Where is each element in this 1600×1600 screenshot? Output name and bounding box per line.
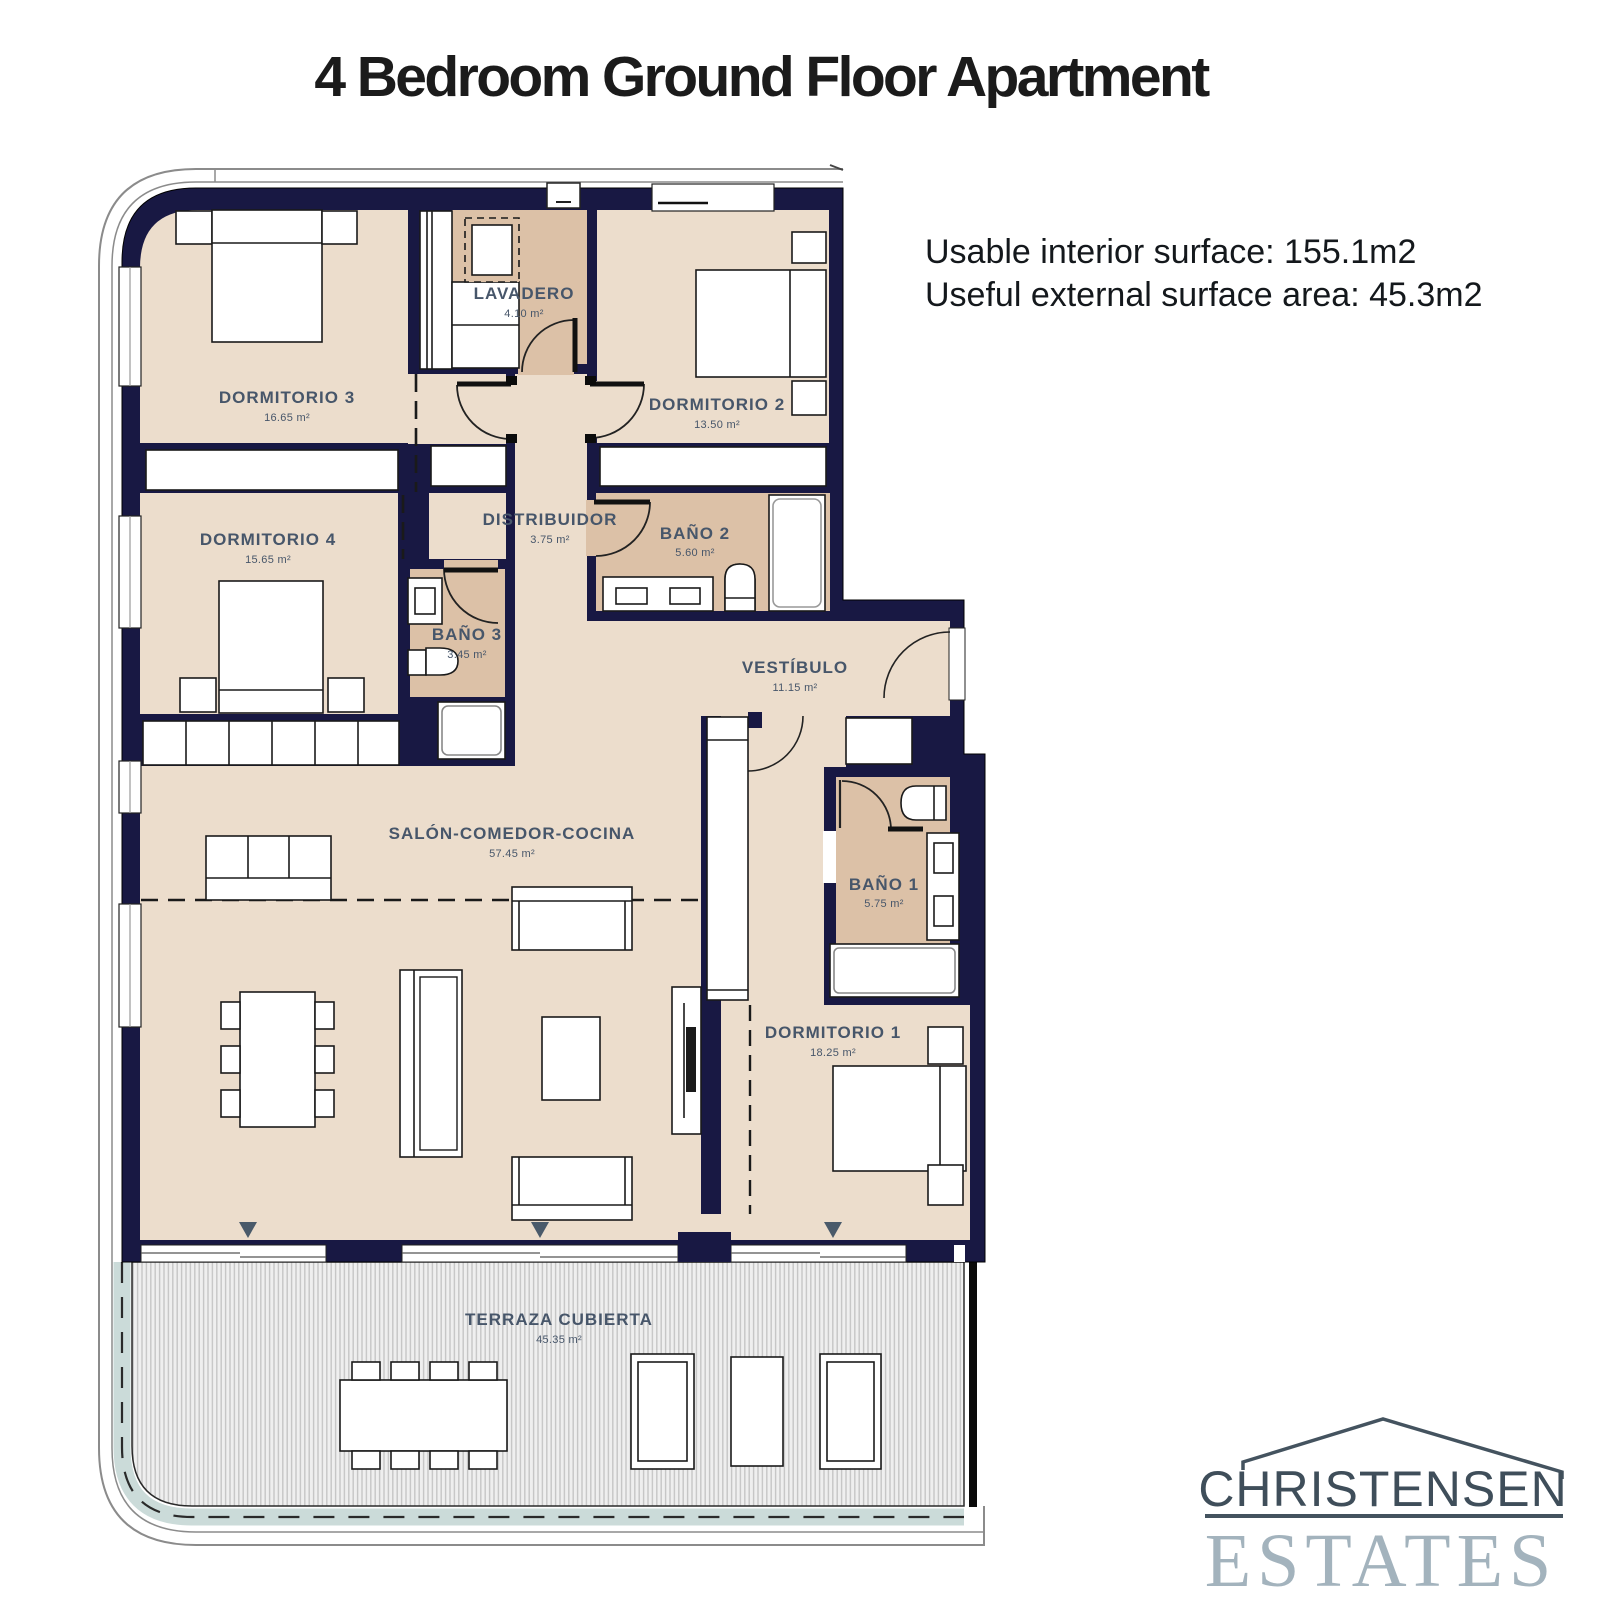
svg-text:15.65 m²: 15.65 m² bbox=[245, 554, 291, 566]
svg-text:4.10 m²: 4.10 m² bbox=[504, 308, 543, 320]
svg-text:4 Bedroom Ground Floor Apartme: 4 Bedroom Ground Floor Apartment bbox=[314, 45, 1210, 109]
svg-text:13.50 m²: 13.50 m² bbox=[694, 419, 740, 431]
svg-text:3.45 m²: 3.45 m² bbox=[447, 649, 486, 661]
svg-text:SALÓN-COMEDOR-COCINA: SALÓN-COMEDOR-COCINA bbox=[389, 824, 636, 843]
svg-text:ESTATES: ESTATES bbox=[1205, 1519, 1558, 1600]
svg-text:18.25 m²: 18.25 m² bbox=[810, 1047, 856, 1059]
svg-text:Useful external surface area:: Useful external surface area: 45.3m2 bbox=[925, 276, 1483, 314]
svg-text:BAÑO 1: BAÑO 1 bbox=[849, 874, 919, 894]
svg-text:BAÑO 2: BAÑO 2 bbox=[660, 523, 730, 543]
svg-text:TERRAZA CUBIERTA: TERRAZA CUBIERTA bbox=[465, 1310, 653, 1329]
svg-text:5.60 m²: 5.60 m² bbox=[675, 547, 714, 559]
svg-text:DORMITORIO 1: DORMITORIO 1 bbox=[765, 1023, 901, 1042]
svg-text:CHRISTENSEN: CHRISTENSEN bbox=[1198, 1461, 1567, 1517]
svg-text:LAVADERO: LAVADERO bbox=[474, 284, 575, 303]
svg-text:45.35 m²: 45.35 m² bbox=[536, 1334, 582, 1346]
svg-text:BAÑO 3: BAÑO 3 bbox=[432, 624, 502, 644]
svg-text:VESTÍBULO: VESTÍBULO bbox=[742, 658, 848, 677]
svg-text:Usable interior surface: 155.1: Usable interior surface: 155.1m2 bbox=[925, 233, 1416, 271]
svg-text:DORMITORIO 2: DORMITORIO 2 bbox=[649, 395, 785, 414]
svg-text:3.75 m²: 3.75 m² bbox=[530, 534, 569, 546]
svg-text:DORMITORIO 4: DORMITORIO 4 bbox=[200, 530, 336, 549]
svg-text:DORMITORIO 3: DORMITORIO 3 bbox=[219, 388, 355, 407]
svg-text:16.65 m²: 16.65 m² bbox=[264, 412, 310, 424]
svg-text:5.75 m²: 5.75 m² bbox=[864, 898, 903, 910]
svg-text:DISTRIBUIDOR: DISTRIBUIDOR bbox=[483, 510, 618, 529]
svg-text:11.15 m²: 11.15 m² bbox=[773, 682, 818, 694]
svg-text:57.45 m²: 57.45 m² bbox=[489, 848, 535, 860]
